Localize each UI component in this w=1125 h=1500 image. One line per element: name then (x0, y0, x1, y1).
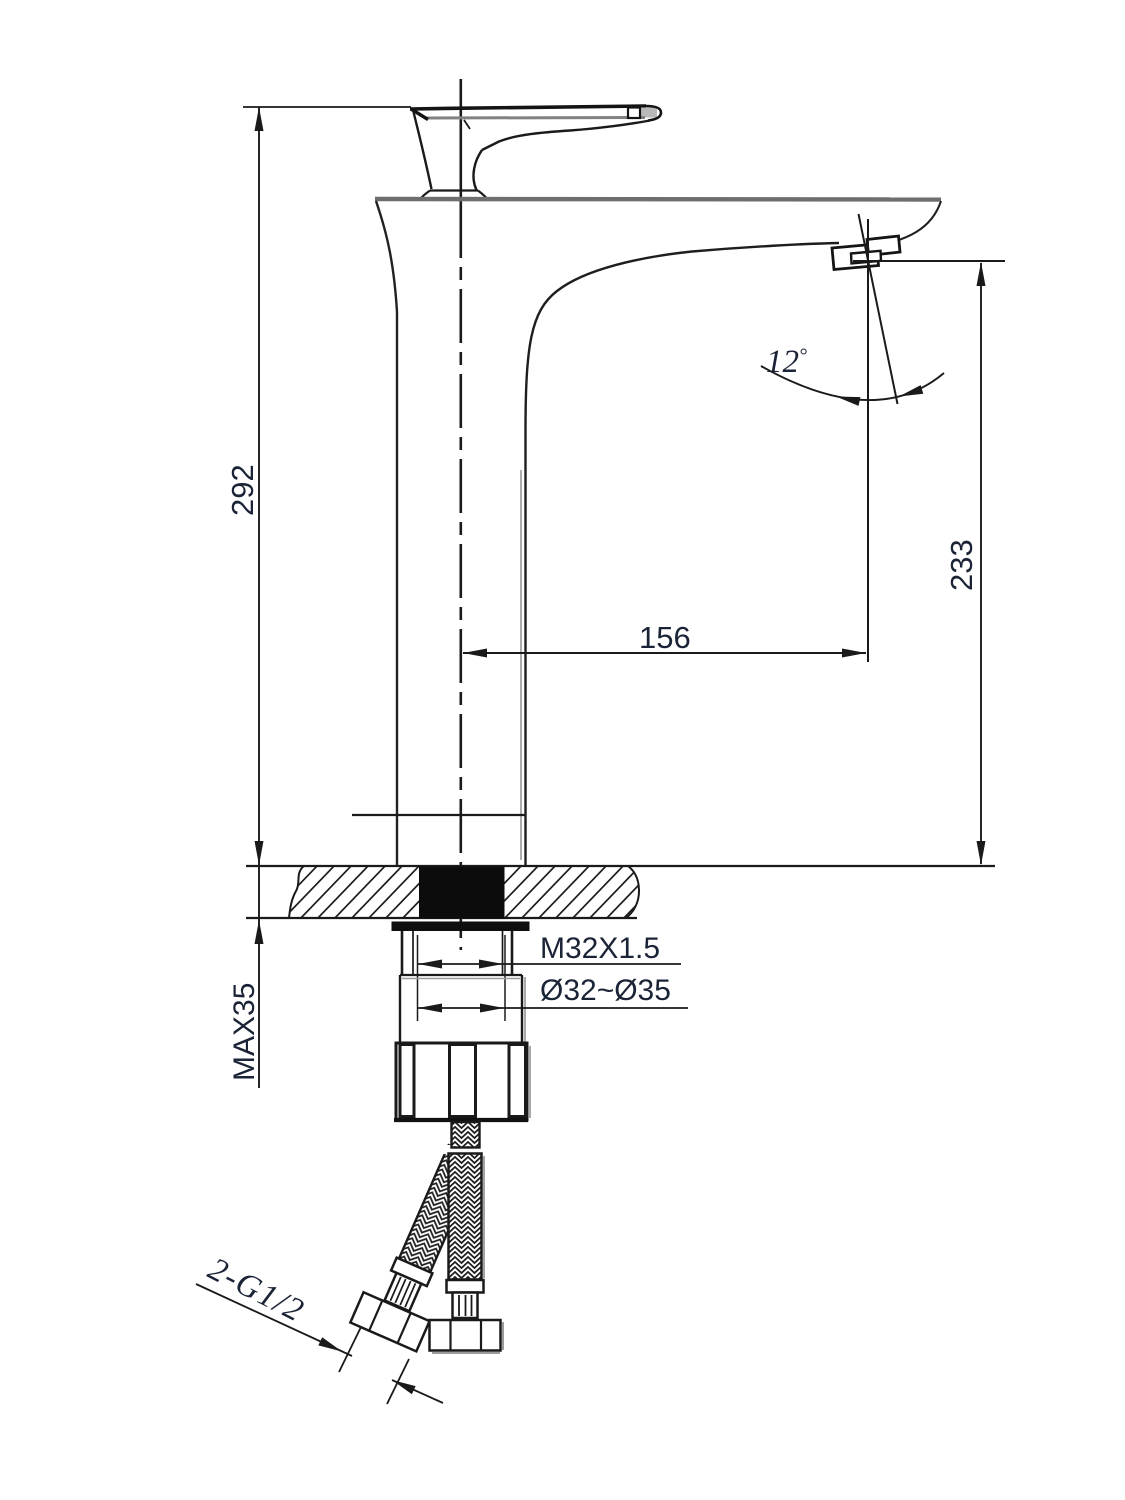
svg-text:M32X1.5: M32X1.5 (540, 932, 660, 965)
svg-text:Ø32~Ø35: Ø32~Ø35 (540, 974, 671, 1007)
svg-text:233: 233 (944, 539, 979, 591)
svg-text:156: 156 (639, 620, 691, 655)
svg-text:MAX35: MAX35 (228, 983, 261, 1081)
svg-text:292: 292 (225, 464, 260, 516)
